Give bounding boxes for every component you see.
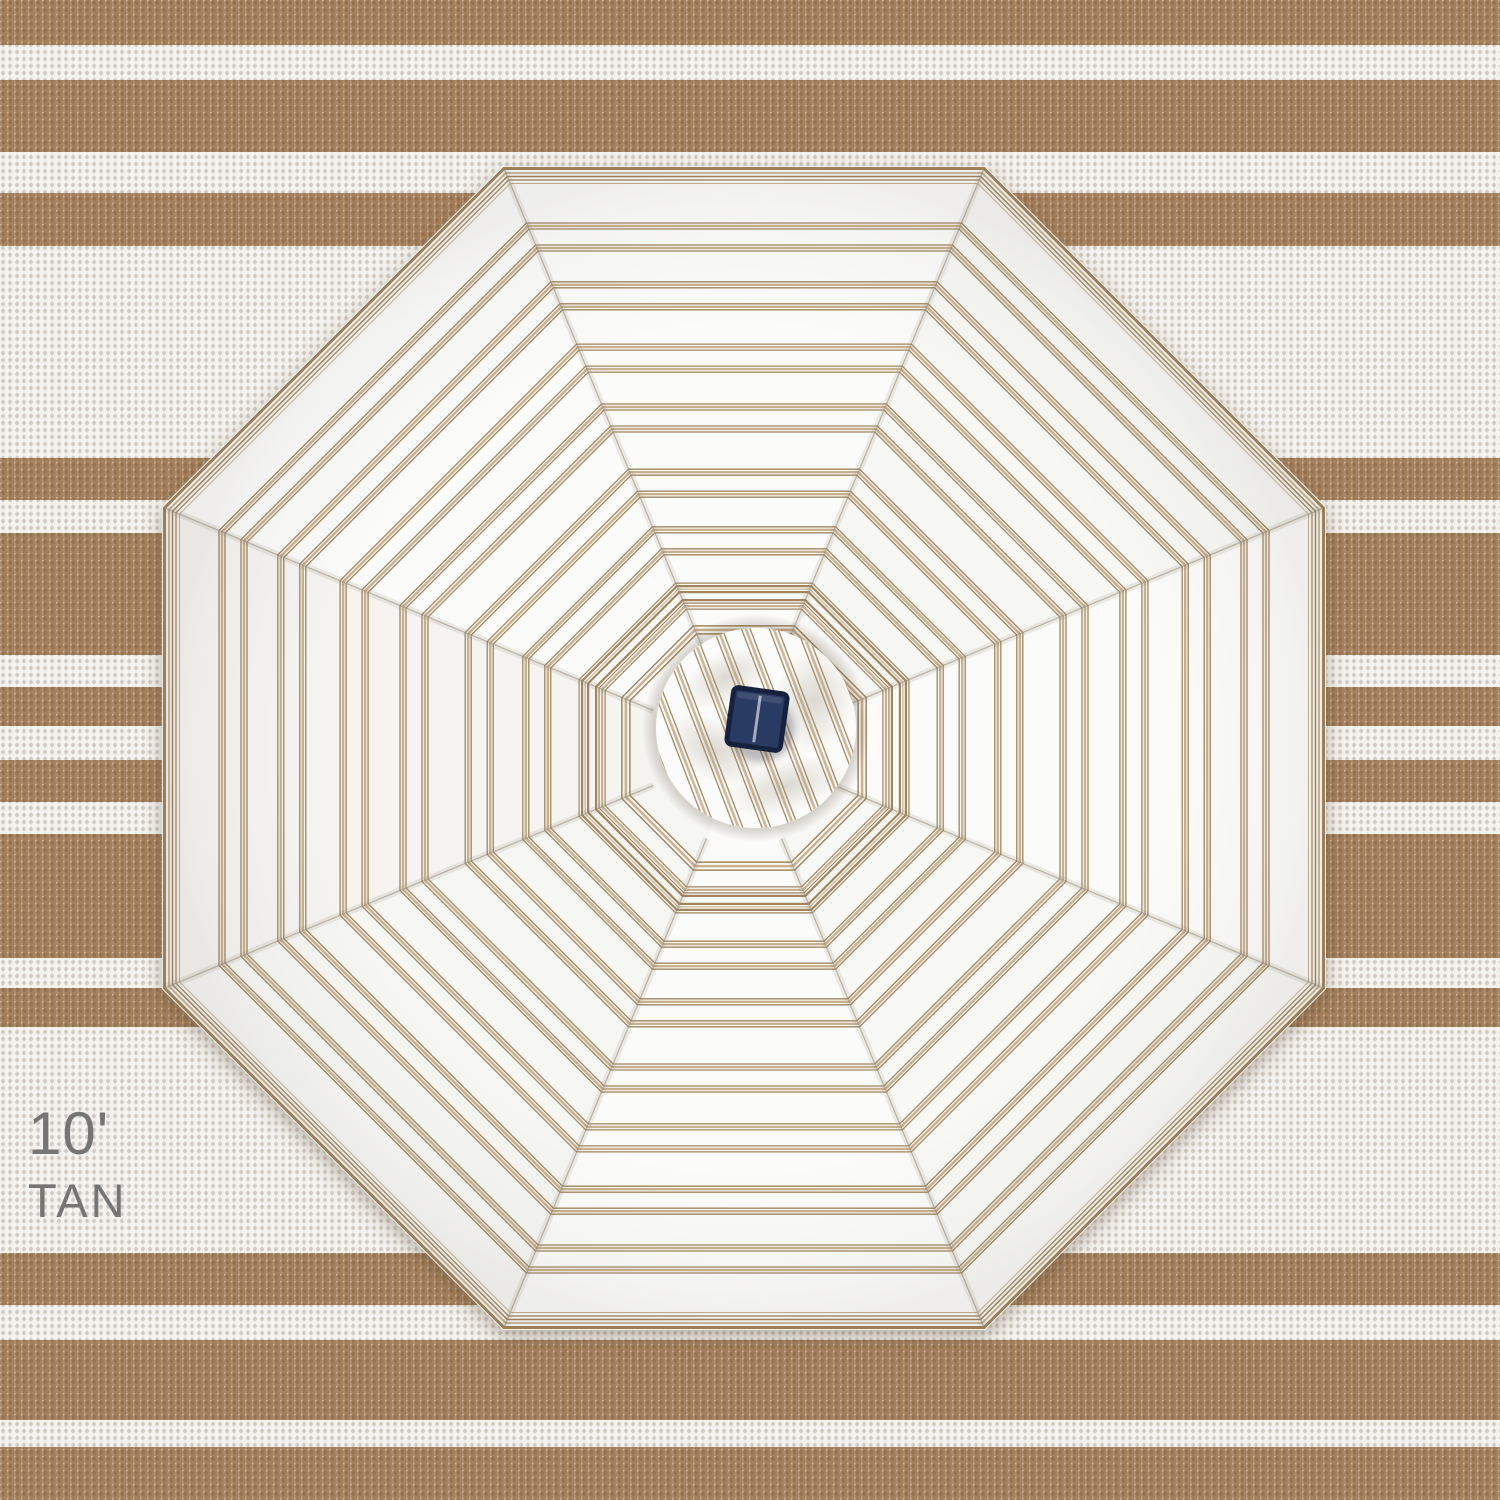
- solar-panel: [726, 687, 787, 751]
- patio-umbrella-canopy: [0, 0, 1500, 1500]
- size-label: 10': [28, 1102, 128, 1166]
- color-name-label: TAN: [28, 1176, 128, 1226]
- canopy-group: [162, 166, 1326, 1330]
- product-variant-label: 10' TAN: [28, 1102, 128, 1226]
- product-photo-umbrella-top-view: 10' TAN: [0, 0, 1500, 1500]
